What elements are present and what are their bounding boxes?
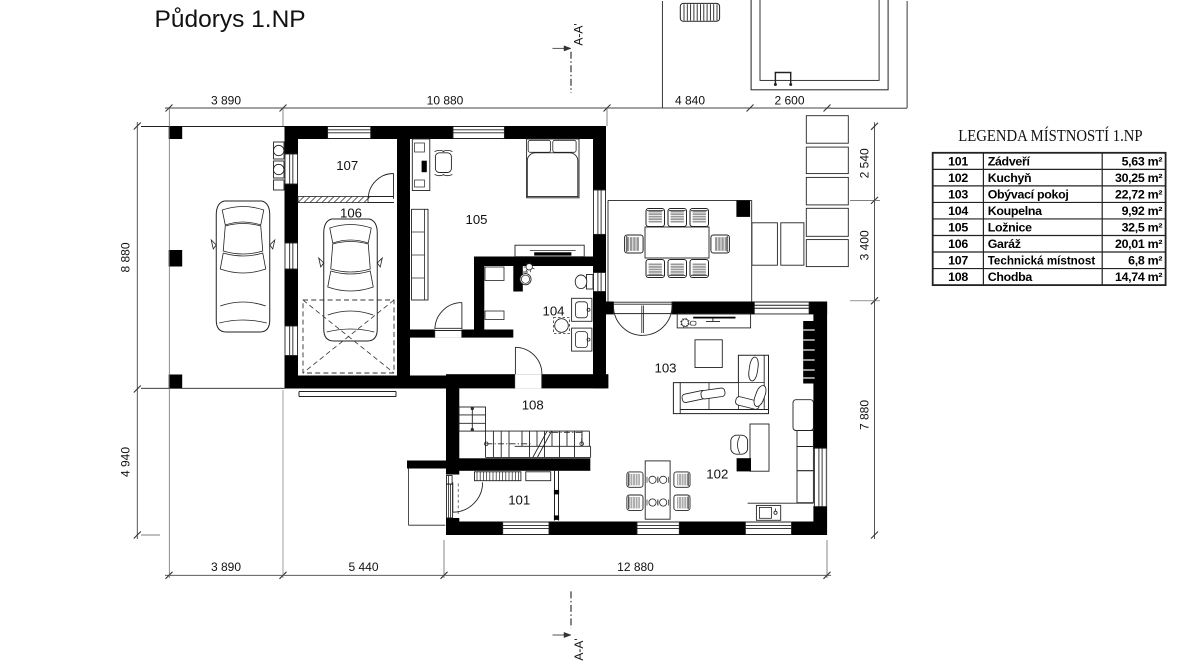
svg-text:10 880: 10 880 — [427, 94, 464, 108]
svg-text:107: 107 — [336, 158, 358, 173]
svg-text:A-A': A-A' — [572, 23, 586, 45]
svg-text:Zádveří: Zádveří — [988, 154, 1031, 168]
svg-text:Ložnice: Ložnice — [988, 221, 1032, 235]
svg-text:14,74 m²: 14,74 m² — [1115, 270, 1162, 284]
svg-text:9,92 m²: 9,92 m² — [1122, 204, 1163, 218]
svg-text:6,8 m²: 6,8 m² — [1128, 254, 1162, 268]
svg-text:104: 104 — [948, 204, 968, 218]
svg-text:108: 108 — [948, 270, 968, 284]
svg-text:105: 105 — [465, 212, 487, 227]
svg-text:107: 107 — [948, 254, 968, 268]
svg-text:2 600: 2 600 — [774, 94, 804, 108]
svg-text:108: 108 — [522, 397, 544, 412]
svg-text:4 840: 4 840 — [675, 94, 705, 108]
svg-text:106: 106 — [948, 237, 968, 251]
svg-text:5 440: 5 440 — [348, 560, 378, 574]
svg-text:3 890: 3 890 — [211, 560, 241, 574]
svg-text:101: 101 — [508, 493, 530, 508]
svg-text:30,25 m²: 30,25 m² — [1115, 171, 1162, 185]
svg-text:Půdorys 1.NP: Půdorys 1.NP — [155, 6, 306, 33]
svg-text:LEGENDA MÍSTNOSTÍ 1.NP: LEGENDA MÍSTNOSTÍ 1.NP — [958, 126, 1142, 145]
svg-text:Koupelna: Koupelna — [988, 204, 1042, 218]
svg-text:12 880: 12 880 — [617, 560, 654, 574]
svg-text:103: 103 — [948, 187, 968, 201]
svg-text:A-A': A-A' — [572, 638, 586, 660]
svg-text:5,63 m²: 5,63 m² — [1122, 154, 1163, 168]
svg-text:8 880: 8 880 — [119, 242, 133, 272]
svg-text:105: 105 — [948, 221, 968, 235]
svg-text:101: 101 — [948, 154, 968, 168]
svg-text:102: 102 — [948, 171, 968, 185]
svg-text:103: 103 — [654, 360, 676, 375]
svg-text:Kuchyň: Kuchyň — [988, 171, 1032, 185]
svg-text:104: 104 — [542, 304, 564, 319]
svg-text:2 540: 2 540 — [858, 148, 872, 178]
svg-text:Chodba: Chodba — [988, 270, 1033, 284]
svg-text:102: 102 — [706, 466, 728, 481]
svg-text:Garáž: Garáž — [988, 237, 1021, 251]
svg-text:106: 106 — [340, 206, 362, 221]
svg-text:22,72 m²: 22,72 m² — [1115, 187, 1162, 201]
svg-text:7 880: 7 880 — [858, 400, 872, 430]
svg-text:3 400: 3 400 — [858, 230, 872, 260]
svg-text:20,01 m²: 20,01 m² — [1115, 237, 1162, 251]
svg-text:Obývací pokoj: Obývací pokoj — [988, 187, 1069, 201]
svg-text:Technická místnost: Technická místnost — [988, 254, 1095, 268]
svg-text:4 940: 4 940 — [119, 447, 133, 477]
svg-text:3 890: 3 890 — [211, 94, 241, 108]
svg-text:32,5 m²: 32,5 m² — [1122, 221, 1163, 235]
